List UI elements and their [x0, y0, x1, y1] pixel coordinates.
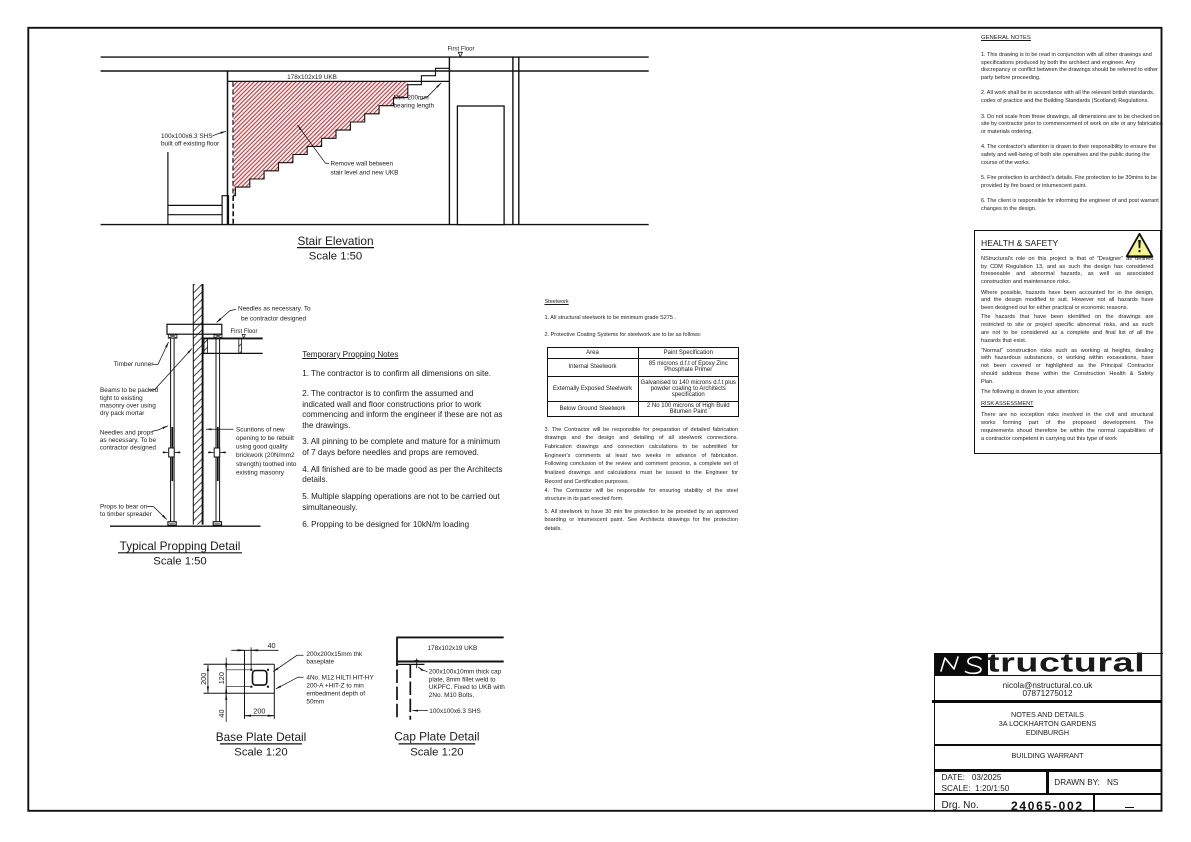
svg-text:Typical Propping Detail: Typical Propping Detail — [120, 539, 241, 553]
svg-text:brickwork (20N/mm2: brickwork (20N/mm2 — [236, 452, 295, 459]
svg-text:Needles and props: Needles and props — [100, 429, 154, 436]
svg-text:UKPFC. Fixed to UKB with: UKPFC. Fixed to UKB with — [429, 684, 505, 691]
svg-text:2No. M10 Bolts.: 2No. M10 Bolts. — [429, 692, 475, 699]
svg-text:opening to be rebuilt: opening to be rebuilt — [236, 435, 294, 442]
svg-text:120: 120 — [217, 672, 226, 684]
svg-text:Scale 1:50: Scale 1:50 — [153, 555, 206, 567]
svg-text:200x100x10mm thick cap: 200x100x10mm thick cap — [429, 669, 502, 676]
svg-text:50mm: 50mm — [306, 699, 324, 706]
svg-text:tructural: tructural — [987, 650, 1145, 676]
svg-text:Scale 1:50: Scale 1:50 — [309, 250, 362, 262]
svg-text:200: 200 — [253, 706, 265, 715]
svg-text:First Floor: First Floor — [448, 47, 475, 53]
svg-text:Timber runner: Timber runner — [114, 361, 155, 368]
svg-text:178x102x19 UKB: 178x102x19 UKB — [287, 74, 337, 81]
svg-text:dry pack mortar: dry pack mortar — [100, 410, 145, 417]
svg-text:built off existing floor: built off existing floor — [161, 141, 220, 148]
svg-text:Min. 200mm: Min. 200mm — [394, 94, 429, 101]
svg-text:Props to bear on: Props to bear on — [100, 503, 148, 510]
svg-text:Scale 1:20: Scale 1:20 — [234, 747, 287, 759]
svg-text:bearing length: bearing length — [394, 102, 435, 109]
svg-text:be contractor designed: be contractor designed — [241, 315, 306, 322]
svg-text:strength) toothed into: strength) toothed into — [236, 461, 297, 468]
svg-text:Remove wall between: Remove wall between — [331, 161, 394, 168]
svg-text:200-A +HIT-Z to min: 200-A +HIT-Z to min — [306, 683, 364, 690]
svg-text:masonry over using: masonry over using — [100, 402, 156, 409]
svg-text:200x200x15mm thk: 200x200x15mm thk — [306, 651, 363, 658]
svg-text:Stair Elevation: Stair Elevation — [297, 234, 373, 248]
svg-text:178x102x19 UKB: 178x102x19 UKB — [428, 645, 478, 652]
svg-text:plate, 8mm fillet weld to: plate, 8mm fillet weld to — [429, 676, 496, 683]
svg-text:to timber spreader: to timber spreader — [100, 511, 153, 518]
svg-text:Scale 1:20: Scale 1:20 — [410, 747, 463, 759]
svg-text:using good quality: using good quality — [236, 444, 288, 451]
svg-text:100x100x6.3 SHS: 100x100x6.3 SHS — [161, 133, 213, 140]
svg-text:200: 200 — [199, 673, 208, 685]
svg-text:40: 40 — [217, 709, 226, 717]
svg-text:100x100x6.3 SHS: 100x100x6.3 SHS — [429, 708, 481, 715]
svg-text:as necessary. To be: as necessary. To be — [100, 437, 157, 444]
svg-text:Beams to be packed: Beams to be packed — [100, 387, 159, 394]
svg-text:Needles as necessary. To: Needles as necessary. To — [238, 306, 311, 313]
svg-text:embedment depth of: embedment depth of — [306, 691, 365, 698]
svg-text:existing masonry: existing masonry — [236, 469, 285, 476]
svg-text:baseplate: baseplate — [306, 659, 334, 666]
svg-text:tight to existing: tight to existing — [100, 395, 143, 402]
svg-text:Base Plate Detail: Base Plate Detail — [216, 730, 307, 744]
svg-text:Cap Plate Detail: Cap Plate Detail — [394, 730, 479, 744]
svg-text:contractor designed: contractor designed — [100, 445, 157, 452]
svg-text:40: 40 — [267, 641, 275, 650]
svg-text:4No. M12 HILTI HIT-HY: 4No. M12 HILTI HIT-HY — [306, 675, 374, 682]
svg-text:stair level and new UKB: stair level and new UKB — [331, 170, 399, 177]
svg-text:Scuntions of new: Scuntions of new — [236, 426, 285, 433]
